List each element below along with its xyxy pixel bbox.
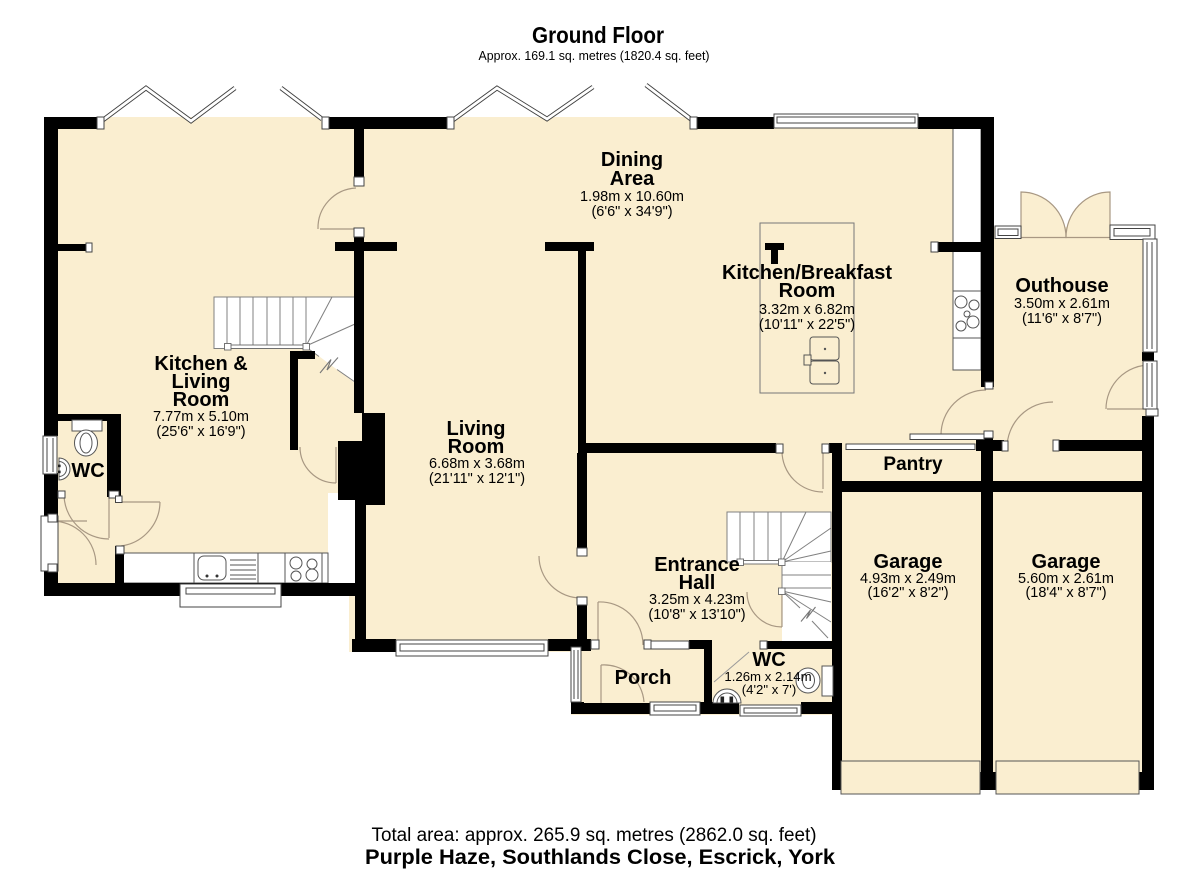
svg-text:Approx. 169.1 sq. metres (1820: Approx. 169.1 sq. metres (1820.4 sq. fee… (479, 49, 710, 63)
svg-text:1.98m x 10.60m: 1.98m x 10.60m (580, 189, 684, 205)
svg-text:(4'2" x 7'): (4'2" x 7') (742, 682, 796, 697)
svg-text:WC: WC (71, 460, 104, 482)
svg-text:(16'2" x 8'2"): (16'2" x 8'2") (867, 585, 948, 601)
svg-text:WC: WC (752, 649, 785, 671)
svg-text:Purple Haze, Southlands Close,: Purple Haze, Southlands Close, Escrick, … (365, 846, 835, 869)
svg-text:Room: Room (779, 280, 836, 302)
svg-text:Total area: approx. 265.9 sq.: Total area: approx. 265.9 sq. metres (28… (372, 825, 817, 846)
svg-text:Porch: Porch (615, 667, 672, 689)
svg-text:Pantry: Pantry (883, 454, 943, 475)
svg-text:Outhouse: Outhouse (1015, 275, 1108, 297)
svg-text:(10'8" x 13'10"): (10'8" x 13'10") (648, 607, 745, 623)
svg-text:3.25m x 4.23m: 3.25m x 4.23m (649, 592, 745, 608)
svg-text:(10'11" x 22'5"): (10'11" x 22'5") (759, 317, 855, 333)
svg-text:(18'4" x 8'7"): (18'4" x 8'7") (1025, 585, 1106, 601)
svg-text:Garage: Garage (1032, 551, 1101, 573)
svg-text:Ground Floor: Ground Floor (532, 22, 664, 48)
svg-text:7.77m x 5.10m: 7.77m x 5.10m (153, 409, 249, 425)
svg-text:3.32m x 6.82m: 3.32m x 6.82m (759, 302, 855, 318)
svg-text:(21'11" x 12'1"): (21'11" x 12'1") (429, 471, 525, 487)
svg-text:(6'6" x 34'9"): (6'6" x 34'9") (591, 204, 672, 220)
svg-text:Garage: Garage (874, 551, 943, 573)
svg-text:Hall: Hall (679, 572, 716, 594)
svg-text:(11'6" x 8'7"): (11'6" x 8'7") (1022, 311, 1102, 327)
svg-text:Room: Room (173, 389, 230, 411)
svg-text:Room: Room (448, 436, 505, 458)
svg-text:Area: Area (610, 168, 655, 190)
svg-text:(25'6" x 16'9"): (25'6" x 16'9") (156, 424, 245, 440)
svg-text:6.68m x 3.68m: 6.68m x 3.68m (429, 456, 525, 472)
svg-text:3.50m x 2.61m: 3.50m x 2.61m (1014, 296, 1110, 312)
